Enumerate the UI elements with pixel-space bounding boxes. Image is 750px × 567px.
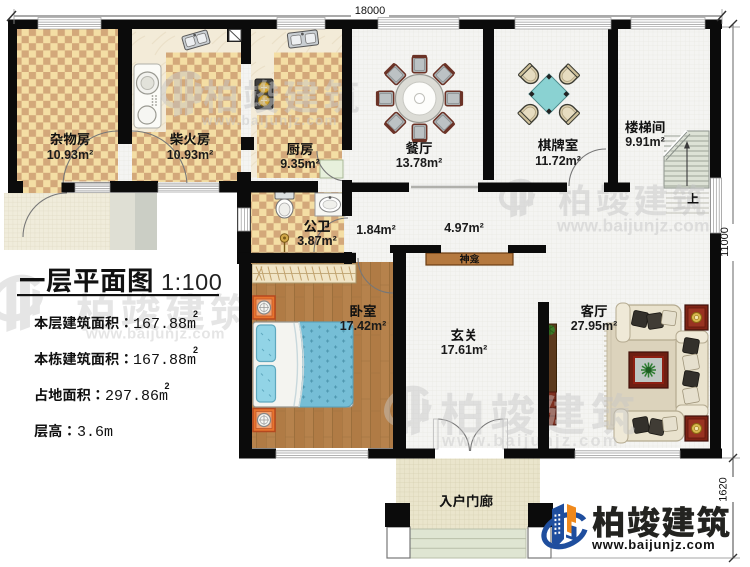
svg-text:297.86m: 297.86m [105, 388, 168, 405]
svg-text:17.61m²: 17.61m² [441, 343, 488, 357]
svg-text:4.97m²: 4.97m² [444, 221, 484, 235]
svg-text:www.baijunjz.com: www.baijunjz.com [591, 537, 715, 552]
svg-text:9.35m²: 9.35m² [280, 157, 320, 171]
svg-text:1:100: 1:100 [161, 269, 222, 295]
svg-text:167.88m: 167.88m [133, 316, 196, 333]
svg-text:11.72m²: 11.72m² [535, 154, 581, 168]
svg-text:17.42m²: 17.42m² [340, 319, 387, 333]
svg-text:1620: 1620 [718, 477, 730, 501]
svg-text:10.93m²: 10.93m² [167, 148, 214, 162]
svg-text:3.6m: 3.6m [77, 424, 113, 441]
svg-text:10.93m²: 10.93m² [47, 148, 94, 162]
svg-text:1.84m²: 1.84m² [356, 223, 396, 237]
svg-text:13.78m²: 13.78m² [396, 156, 443, 170]
svg-text:11000: 11000 [719, 227, 731, 257]
svg-text:2: 2 [193, 345, 198, 355]
svg-text:www.baijunjz.com: www.baijunjz.com [201, 113, 338, 128]
svg-text:www.baijunjz.com: www.baijunjz.com [441, 432, 620, 450]
svg-text:167.88m: 167.88m [133, 352, 196, 369]
svg-text:18000: 18000 [355, 5, 386, 17]
svg-text:2: 2 [165, 381, 170, 391]
svg-text:3.87m²: 3.87m² [297, 234, 337, 248]
svg-text:www.baijunjz.com: www.baijunjz.com [556, 216, 710, 236]
svg-text:9.91m²: 9.91m² [625, 135, 665, 149]
svg-text:27.95m²: 27.95m² [571, 319, 618, 333]
svg-text:2: 2 [193, 309, 198, 319]
